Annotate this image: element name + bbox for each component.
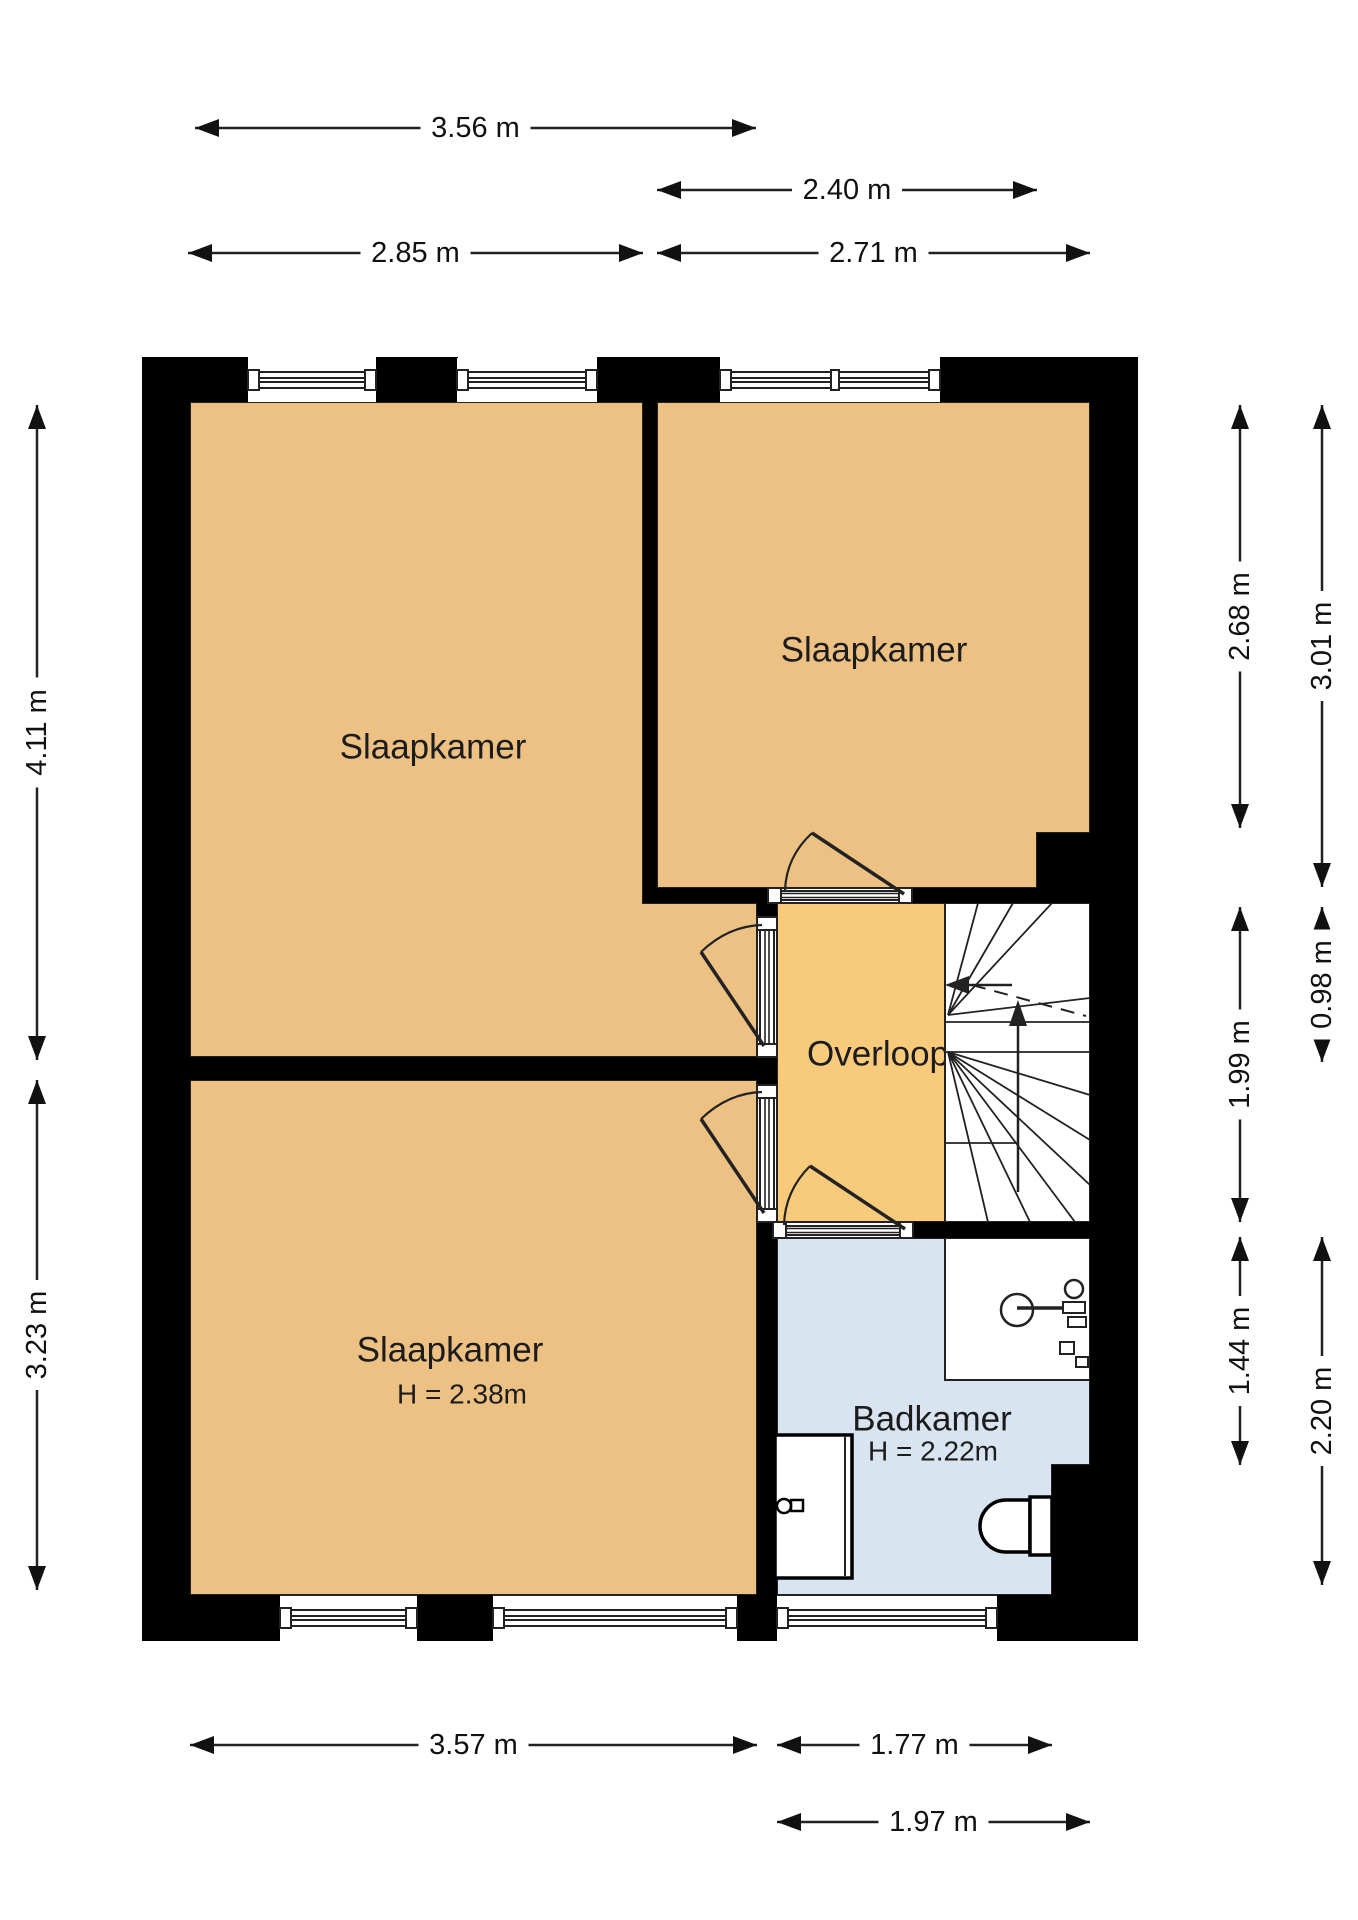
dimension-411m: 4.11 m	[18, 405, 56, 1060]
window-top-3-sill-block	[720, 370, 731, 390]
dimension-arrowhead	[1231, 1237, 1249, 1261]
dimension-arrowhead	[1066, 244, 1090, 262]
dimension-220m: 2.20 m	[1303, 1237, 1341, 1585]
window-top-2-sill-block	[586, 370, 597, 390]
wall-top-pier-2	[376, 357, 458, 402]
dimension-arrowhead	[28, 1036, 46, 1060]
badkamer-label: Badkamer	[852, 1400, 1012, 1439]
rooms-layer: SlaapkamerSlaapkamerSlaapkamerH = 2.38mO…	[190, 402, 1090, 1595]
dimension-357m: 3.57 m	[190, 1726, 757, 1764]
dimension-arrowhead	[657, 181, 681, 199]
dimension-label: 2.40 m	[803, 174, 892, 206]
wall-right-wall	[1090, 402, 1138, 1595]
window-top-1-sill-block	[365, 370, 376, 390]
dimension-197m: 1.97 m	[777, 1803, 1090, 1841]
window-bottom-2-sill-block	[726, 1608, 737, 1628]
room-slaapkamer-3: SlaapkamerH = 2.38m	[190, 1080, 757, 1595]
faucet-part	[1063, 1302, 1085, 1313]
dimension-arrowhead	[1313, 1561, 1331, 1585]
dimension-arrowhead	[1313, 863, 1331, 887]
dimension-label: 3.01 m	[1306, 602, 1338, 691]
dimension-arrowhead	[1231, 804, 1249, 828]
wall-top-pier-3	[597, 357, 720, 402]
dimension-arrowhead	[1231, 1441, 1249, 1465]
wall-landing-left-wall-b	[757, 1057, 777, 1085]
door-badkamer-jamb	[900, 1222, 913, 1238]
dimension-arrowhead	[732, 119, 756, 137]
window-top-3-mullion	[831, 370, 839, 390]
window-top-2-glass	[468, 372, 586, 388]
window-bottom-1-glass	[291, 1610, 406, 1626]
window-top-2	[457, 358, 597, 402]
door-slaapkamer-2-jamb	[768, 888, 781, 903]
wall-bedroom2-bottom-wall-a	[643, 888, 768, 903]
slaapkamer-2-label: Slaapkamer	[781, 631, 968, 670]
dimension-arrowhead	[190, 1736, 214, 1754]
dimension-label: 2.68 m	[1224, 572, 1256, 661]
dimension-label: 1.77 m	[870, 1729, 959, 1761]
faucet-part	[1076, 1357, 1088, 1367]
dimension-label: 0.98 m	[1306, 940, 1338, 1029]
window-bottom-3-sill-block	[986, 1608, 997, 1628]
dimension-arrowhead	[28, 1080, 46, 1104]
window-bottom-1	[280, 1596, 417, 1640]
room-slaapkamer-2: Slaapkamer	[657, 402, 1090, 888]
wall-right-notch-upper	[1037, 833, 1090, 891]
dimension-arrowhead	[1313, 1038, 1331, 1062]
dimension-label: 2.71 m	[829, 237, 918, 269]
dimension-arrowhead	[1231, 1198, 1249, 1222]
dimension-label: 1.97 m	[889, 1806, 978, 1838]
dimension-arrowhead	[28, 405, 46, 429]
dimension-177m: 1.77 m	[777, 1726, 1052, 1764]
door-slaapkamer-1-panel	[760, 930, 774, 1044]
wall-bottom-pier-2	[417, 1595, 493, 1641]
window-bottom-2-glass	[504, 1610, 726, 1626]
wall-bedroom13-divider-wall	[190, 1057, 757, 1080]
window-bottom-3	[777, 1596, 997, 1640]
dimension-arrowhead	[733, 1736, 757, 1754]
window-top-1	[248, 358, 376, 402]
door-badkamer-panel	[786, 1226, 900, 1235]
badkamer-height-label: H = 2.22m	[868, 1436, 998, 1467]
slaapkamer-3-height-label: H = 2.38m	[397, 1379, 527, 1410]
dimension-arrowhead	[1231, 405, 1249, 429]
dimension-arrowhead	[657, 244, 681, 262]
dimension-arrowhead	[1231, 907, 1249, 931]
shower-tray	[775, 1435, 852, 1578]
dimension-label: 4.11 m	[21, 689, 53, 776]
door-slaapkamer-3-jamb	[757, 1209, 777, 1222]
dimension-arrowhead	[1313, 1237, 1331, 1261]
dimension-label: 1.99 m	[1224, 1020, 1256, 1109]
dimension-arrowhead	[777, 1813, 801, 1831]
dimension-356m: 3.56 m	[195, 109, 756, 147]
dimension-arrowhead	[777, 1736, 801, 1754]
shower-unit	[775, 1435, 852, 1578]
wall-bottom-pier-1	[142, 1595, 280, 1641]
window-top-1-glass	[259, 372, 365, 388]
dimension-label: 2.85 m	[371, 237, 460, 269]
wall-bottom-pier-3	[737, 1595, 777, 1641]
wall-top-pier-1	[142, 357, 248, 402]
wall-right-notch-lower	[1052, 1465, 1090, 1595]
window-bottom-2-sill-block	[493, 1608, 504, 1628]
dimension-arrowhead	[1013, 181, 1037, 199]
window-top-1-sill-block	[248, 370, 259, 390]
slaapkamer-3-label: Slaapkamer	[357, 1331, 544, 1370]
window-top-2-sill-block	[457, 370, 468, 390]
dimension-label: 1.44 m	[1224, 1307, 1256, 1396]
dimension-144m: 1.44 m	[1221, 1237, 1259, 1465]
dimension-199m: 1.99 m	[1221, 907, 1259, 1222]
dimension-271m: 2.71 m	[657, 234, 1090, 272]
dimension-label: 3.56 m	[431, 112, 520, 144]
wall-top-pier-4	[940, 357, 1138, 402]
window-bottom-1-sill-block	[406, 1608, 417, 1628]
wall-left-wall	[142, 402, 190, 1641]
wall-bathroom-top-wall	[913, 1222, 1090, 1238]
door-slaapkamer-1-jamb	[757, 917, 777, 930]
window-top-3-sill-block	[929, 370, 940, 390]
window-top-3	[720, 358, 940, 402]
overloop-label: Overloop	[807, 1035, 949, 1074]
wall-bedroom-divider-wall	[643, 402, 657, 892]
slaapkamer-1-label: Slaapkamer	[340, 728, 527, 767]
dimension-arrowhead	[188, 244, 212, 262]
dimension-098m: 0.98 m	[1303, 907, 1341, 1062]
dimension-arrowhead	[28, 1566, 46, 1590]
window-bottom-1-sill-block	[280, 1608, 291, 1628]
dimension-label: 3.23 m	[21, 1291, 53, 1380]
dimension-label: 2.20 m	[1306, 1367, 1338, 1456]
toilet-fixture	[980, 1497, 1052, 1555]
faucet-part	[1060, 1342, 1074, 1354]
window-bottom-2	[493, 1596, 737, 1640]
dimension-arrowhead	[1313, 405, 1331, 429]
dimension-301m: 3.01 m	[1303, 405, 1341, 887]
wall-landing-left-wall-a	[757, 903, 777, 917]
dimension-323m: 3.23 m	[18, 1080, 56, 1590]
floorplan-page: SlaapkamerSlaapkamerSlaapkamerH = 2.38mO…	[0, 0, 1358, 1920]
window-bottom-3-sill-block	[777, 1608, 788, 1628]
toilet-tank	[1030, 1497, 1052, 1555]
window-bottom-3-glass	[788, 1610, 986, 1626]
dimension-240m: 2.40 m	[657, 171, 1037, 209]
wall-bottom-pier-4	[997, 1595, 1138, 1641]
dimension-268m: 2.68 m	[1221, 405, 1259, 828]
floorplan-canvas: SlaapkamerSlaapkamerSlaapkamerH = 2.38mO…	[0, 0, 1358, 1920]
dimension-arrowhead	[1066, 1813, 1090, 1831]
dimension-285m: 2.85 m	[188, 234, 643, 272]
dimension-label: 3.57 m	[429, 1729, 518, 1761]
door-slaapkamer-3-panel	[760, 1098, 774, 1209]
dimension-arrowhead	[1028, 1736, 1052, 1754]
dimension-arrowhead	[1313, 907, 1331, 931]
dimension-arrowhead	[619, 244, 643, 262]
door-slaapkamer-2-panel	[781, 891, 899, 900]
faucet-part	[1068, 1317, 1086, 1327]
toilet-bowl	[980, 1500, 1030, 1552]
dimension-arrowhead	[195, 119, 219, 137]
door-slaapkamer-1-jamb	[757, 1044, 777, 1057]
